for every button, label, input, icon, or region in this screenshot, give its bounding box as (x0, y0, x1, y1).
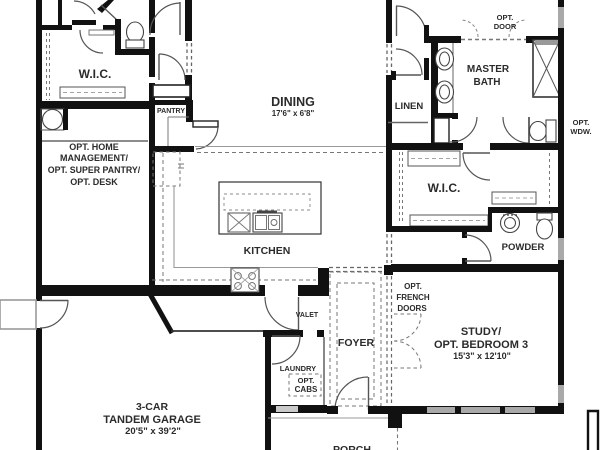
svg-text:LINEN: LINEN (395, 101, 424, 112)
svg-text:15'3" x 12'10": 15'3" x 12'10" (453, 351, 511, 361)
svg-text:OPT. SUPER PANTRY/: OPT. SUPER PANTRY/ (48, 165, 141, 175)
svg-text:POWDER: POWDER (502, 242, 545, 253)
svg-text:PORCH: PORCH (333, 444, 371, 450)
svg-text:OPT. HOME: OPT. HOME (69, 142, 119, 152)
svg-text:OPT.: OPT. (404, 282, 422, 291)
svg-text:3-CAR: 3-CAR (136, 401, 169, 413)
svg-text:STUDY/: STUDY/ (461, 326, 501, 338)
svg-text:CABS: CABS (295, 385, 318, 394)
svg-text:W.I.C.: W.I.C. (428, 181, 461, 195)
svg-text:LAUNDRY: LAUNDRY (280, 364, 316, 373)
svg-text:DINING: DINING (271, 95, 315, 109)
svg-text:PANTRY: PANTRY (157, 108, 185, 115)
svg-text:VALET: VALET (296, 312, 319, 319)
svg-text:KITCHEN: KITCHEN (244, 245, 291, 257)
svg-text:OPT.: OPT. (298, 376, 315, 385)
svg-text:FRENCH: FRENCH (396, 293, 430, 302)
svg-text:OPT.: OPT. (497, 13, 514, 22)
svg-text:20'5" x 39'2": 20'5" x 39'2" (125, 426, 181, 437)
svg-text:FOYER: FOYER (338, 337, 375, 349)
svg-text:MANAGEMENT/: MANAGEMENT/ (60, 153, 128, 163)
svg-text:WDW.: WDW. (570, 127, 591, 136)
svg-text:DOORS: DOORS (397, 304, 427, 313)
svg-text:DOOR: DOOR (494, 22, 517, 31)
svg-text:OPT. BEDROOM 3: OPT. BEDROOM 3 (434, 339, 528, 351)
svg-text:TANDEM GARAGE: TANDEM GARAGE (103, 414, 201, 426)
svg-text:BATH: BATH (473, 77, 500, 88)
svg-text:W.I.C.: W.I.C. (79, 67, 112, 81)
svg-text:OPT. DESK: OPT. DESK (70, 177, 118, 187)
svg-text:17'6" x 6'8": 17'6" x 6'8" (272, 109, 315, 118)
svg-text:MASTER: MASTER (467, 64, 510, 75)
svg-text:OPT.: OPT. (573, 118, 590, 127)
